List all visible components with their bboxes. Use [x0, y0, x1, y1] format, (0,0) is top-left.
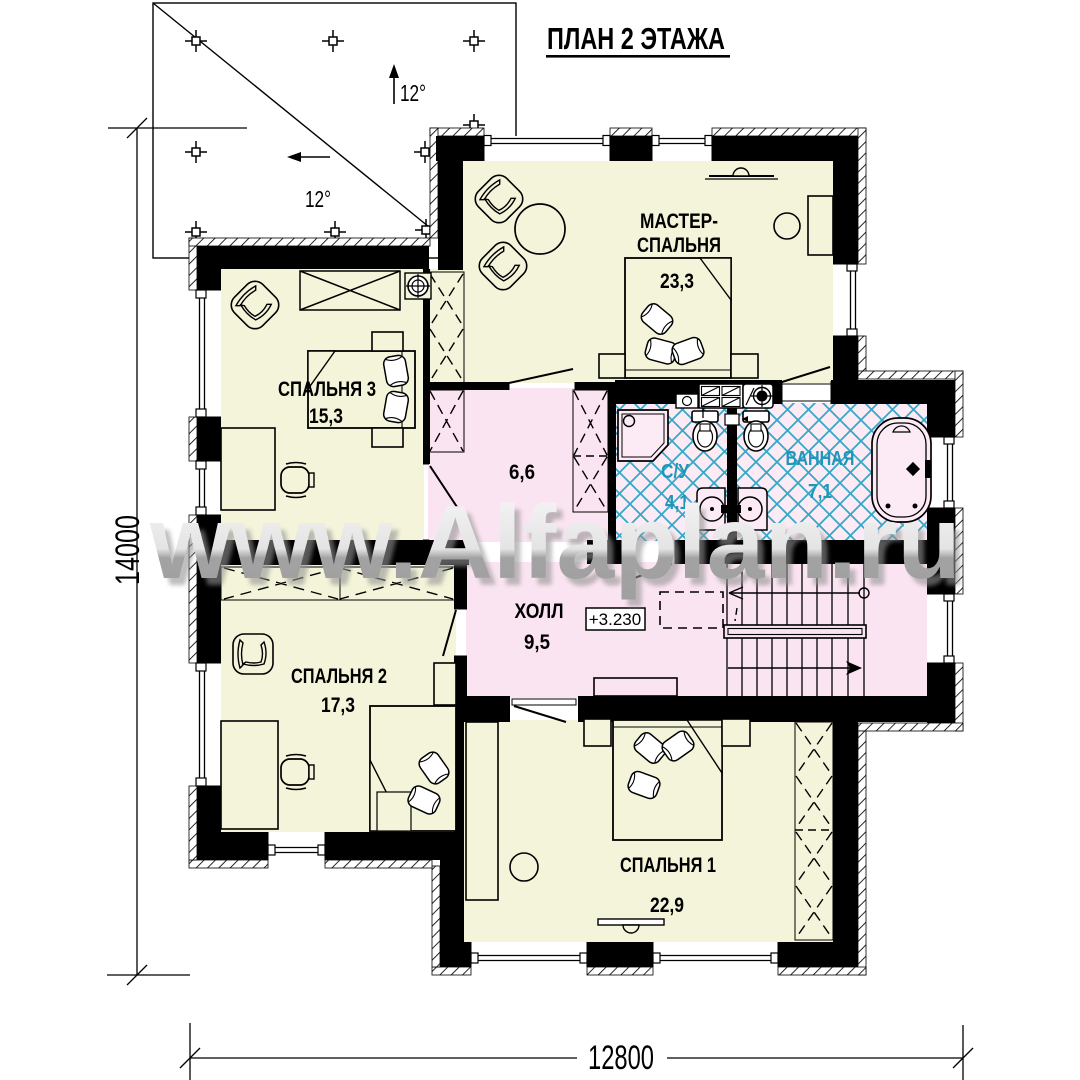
- svg-text:12°: 12°: [400, 80, 426, 106]
- svg-text:С/У: С/У: [661, 461, 689, 483]
- svg-text:СПАЛЬНЯ 2: СПАЛЬНЯ 2: [291, 665, 387, 688]
- svg-text:15,3: 15,3: [309, 405, 343, 428]
- svg-text:23,3: 23,3: [660, 270, 694, 293]
- svg-text:СПАЛЬНЯ: СПАЛЬНЯ: [637, 234, 721, 257]
- svg-text:+3.230: +3.230: [589, 610, 641, 629]
- svg-text:ВАННАЯ: ВАННАЯ: [786, 448, 855, 470]
- svg-text:9,5: 9,5: [524, 631, 550, 654]
- svg-text:МАСТЕР-: МАСТЕР-: [640, 210, 718, 233]
- svg-text:6,6: 6,6: [509, 461, 535, 484]
- svg-text:СПАЛЬНЯ 1: СПАЛЬНЯ 1: [620, 854, 716, 877]
- svg-text:17,3: 17,3: [321, 694, 355, 717]
- svg-text:ПЛАН 2 ЭТАЖА: ПЛАН 2 ЭТАЖА: [547, 21, 725, 56]
- svg-text:12°: 12°: [305, 186, 331, 212]
- svg-text:www.Alfaplan.ru: www.Alfaplan.ru: [149, 485, 961, 601]
- svg-text:СПАЛЬНЯ 3: СПАЛЬНЯ 3: [278, 378, 376, 401]
- svg-text:14000: 14000: [109, 515, 147, 585]
- svg-text:12800: 12800: [588, 1039, 654, 1077]
- svg-text:22,9: 22,9: [650, 894, 684, 917]
